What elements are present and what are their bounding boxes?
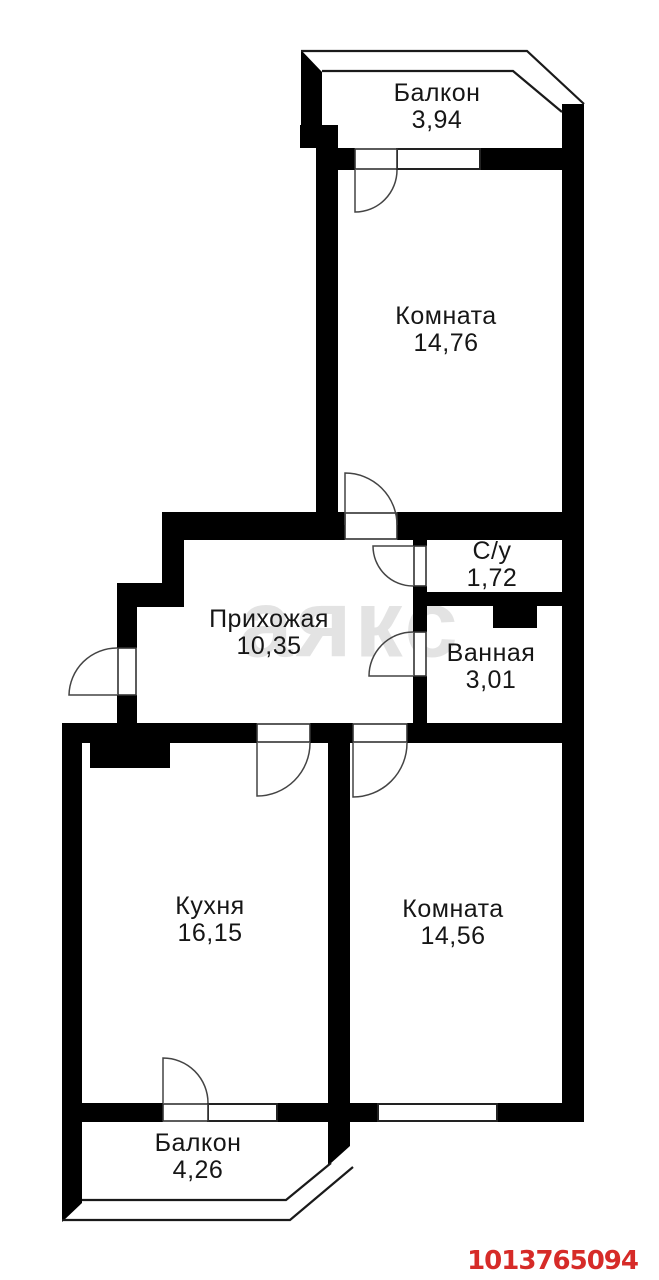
room-label-hallway: Прихожая 10,35 [209, 606, 329, 660]
door-entrance [118, 648, 136, 695]
door-arc-entrance [69, 648, 117, 695]
room-name: Балкон [155, 1130, 242, 1157]
window-room-bottom [378, 1104, 497, 1121]
window-room-top [397, 149, 480, 169]
door-room-bottom [353, 724, 407, 742]
door-arc-kitchen [257, 743, 310, 796]
room-area: 3,01 [447, 667, 536, 694]
room-area: 4,26 [155, 1157, 242, 1184]
room-area: 3,94 [394, 107, 481, 134]
window-kitchen [208, 1104, 277, 1121]
room-label-kitchen: Кухня 16,15 [175, 893, 244, 947]
room-label-room-bottom: Комната 14,56 [402, 896, 503, 950]
room-area: 14,56 [402, 923, 503, 950]
room-label-room-top: Комната 14,76 [395, 303, 496, 357]
room-name: Ванная [447, 640, 536, 667]
room-name: Балкон [394, 80, 481, 107]
door-arc-bathroom [369, 632, 413, 676]
door-arc-balcony-bottom [163, 1058, 208, 1103]
door-balcony-bottom [163, 1104, 208, 1121]
room-area: 1,72 [467, 565, 518, 592]
room-area: 14,76 [395, 330, 496, 357]
floorplan-page: аякс [0, 0, 659, 1280]
room-name: Прихожая [209, 606, 329, 633]
room-name: Комната [395, 303, 496, 330]
room-label-balcony-top: Балкон 3,94 [394, 80, 481, 134]
door-wc [414, 546, 426, 586]
room-label-balcony-bottom: Балкон 4,26 [155, 1130, 242, 1184]
door-arc-wc [373, 546, 413, 586]
door-room-top [345, 513, 397, 539]
door-kitchen [257, 724, 310, 742]
listing-id: 1013765094 [467, 1246, 638, 1276]
room-area: 16,15 [175, 920, 244, 947]
door-balcony-top [355, 149, 397, 169]
room-label-bathroom: Ванная 3,01 [447, 640, 536, 694]
room-name: С/у [467, 538, 518, 565]
floorplan-drawing [0, 0, 659, 1280]
room-name: Комната [402, 896, 503, 923]
room-label-wc: С/у 1,72 [467, 538, 518, 592]
room-name: Кухня [175, 893, 244, 920]
room-area: 10,35 [209, 633, 329, 660]
door-arc-room-bottom [353, 743, 407, 797]
door-arc-balcony-top [355, 170, 397, 212]
door-bathroom [414, 632, 426, 676]
